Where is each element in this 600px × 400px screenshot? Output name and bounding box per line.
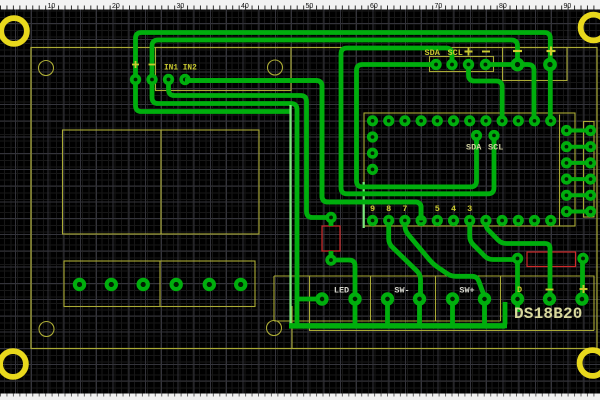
svg-text:7: 7 [402, 204, 407, 214]
svg-text:SW-: SW- [394, 286, 409, 296]
svg-text:90: 90 [564, 3, 572, 10]
svg-text:70: 70 [435, 3, 443, 10]
svg-text:DS18B20: DS18B20 [514, 305, 583, 323]
svg-text:9: 9 [370, 204, 375, 214]
svg-text:80: 80 [499, 3, 507, 10]
svg-text:30: 30 [177, 3, 185, 10]
svg-text:20: 20 [112, 3, 120, 10]
svg-text:D: D [517, 285, 522, 295]
svg-text:LED: LED [334, 286, 349, 296]
svg-text:SCL: SCL [448, 48, 463, 58]
svg-text:5: 5 [435, 204, 440, 214]
svg-text:SDA: SDA [425, 48, 441, 58]
svg-text:8: 8 [386, 204, 391, 214]
svg-text:40: 40 [241, 3, 249, 10]
svg-text:50: 50 [306, 3, 314, 10]
svg-text:60: 60 [370, 3, 378, 10]
svg-text:3: 3 [467, 204, 472, 214]
svg-text:10: 10 [48, 3, 56, 10]
svg-text:4: 4 [451, 204, 456, 214]
svg-text:IN1 IN2: IN1 IN2 [164, 65, 197, 73]
svg-text:SW+: SW+ [459, 286, 474, 296]
svg-text:SCL: SCL [488, 143, 503, 153]
svg-text:SDA: SDA [466, 143, 482, 153]
